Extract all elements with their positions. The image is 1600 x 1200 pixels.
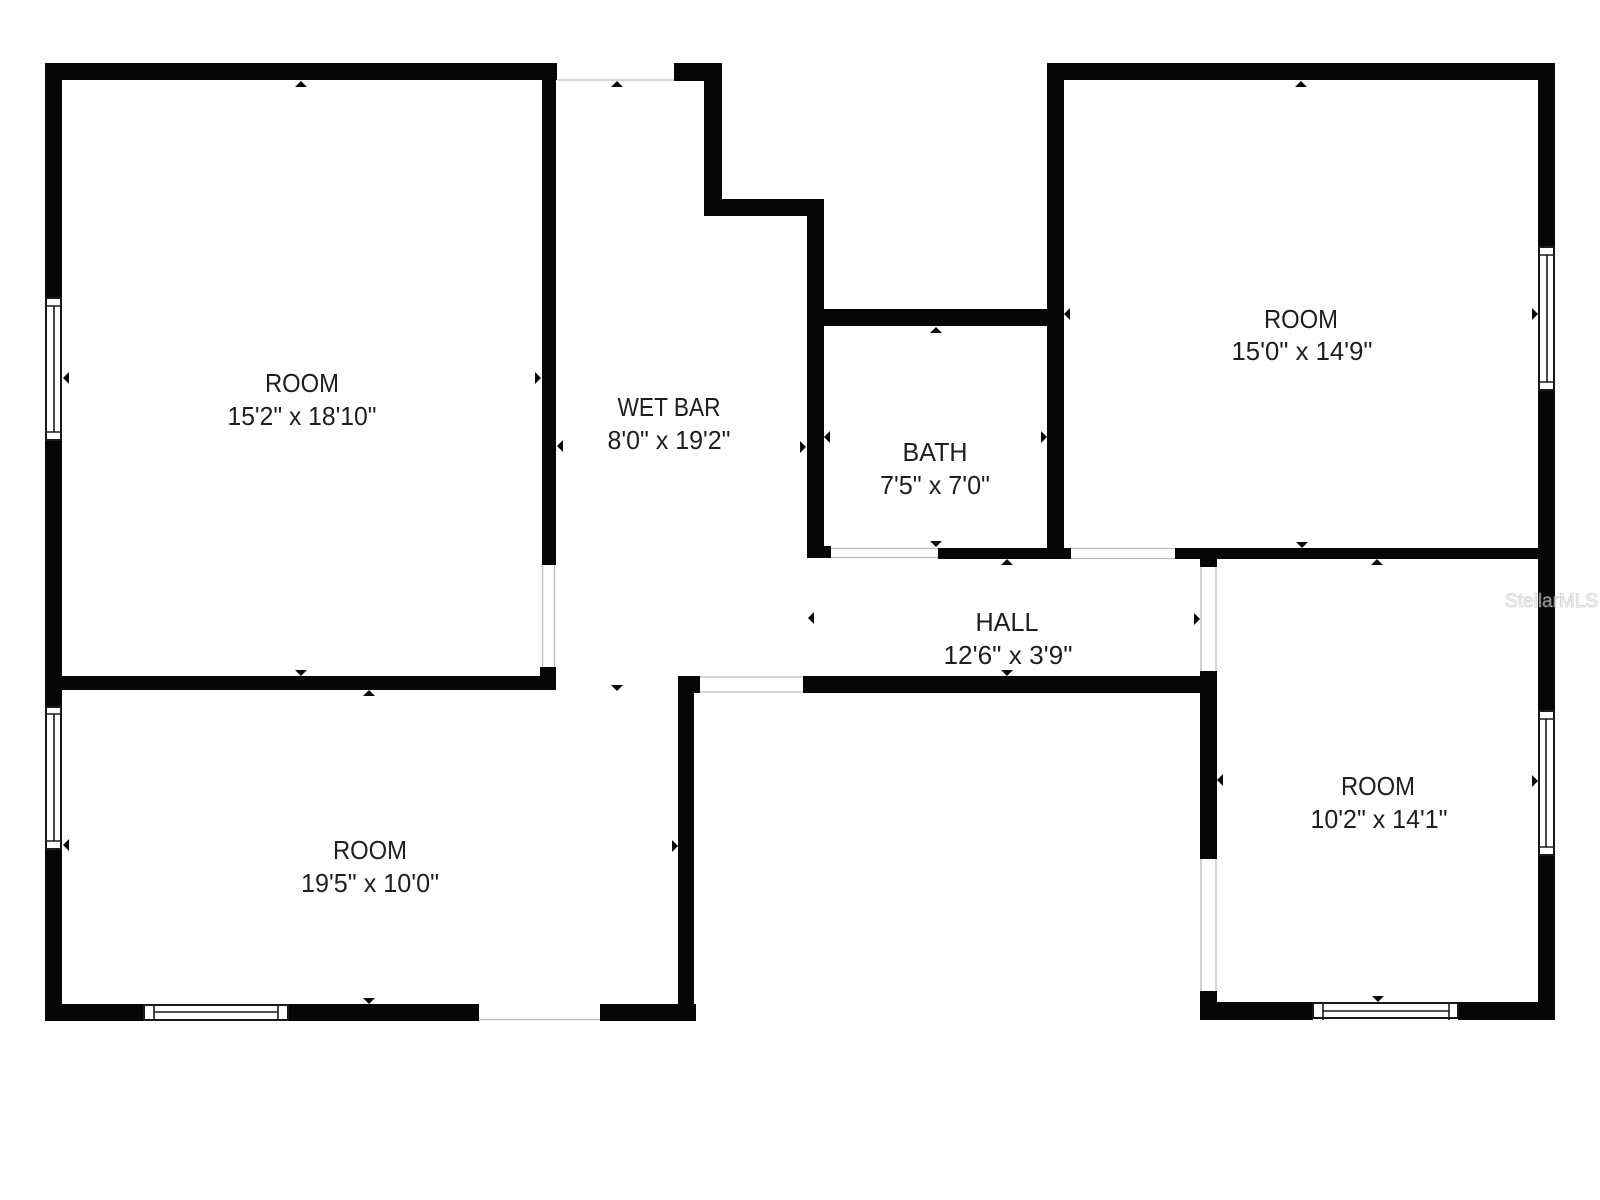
svg-text:WET BAR: WET BAR	[618, 392, 721, 422]
svg-text:12'6" x 3'9": 12'6" x 3'9"	[944, 640, 1073, 670]
svg-text:7'5" x 7'0": 7'5" x 7'0"	[880, 470, 990, 500]
svg-text:BATH: BATH	[903, 437, 968, 467]
svg-text:15'2" x 18'10": 15'2" x 18'10"	[228, 401, 377, 431]
svg-text:ROOM: ROOM	[1341, 771, 1415, 801]
svg-text:ROOM: ROOM	[265, 368, 339, 398]
svg-text:ROOM: ROOM	[1264, 304, 1338, 334]
svg-text:15'0" x 14'9": 15'0" x 14'9"	[1232, 336, 1373, 366]
svg-text:HALL: HALL	[976, 607, 1039, 637]
svg-text:10'2" x 14'1": 10'2" x 14'1"	[1311, 804, 1448, 834]
svg-text:8'0" x 19'2": 8'0" x 19'2"	[608, 425, 731, 455]
svg-text:ROOM: ROOM	[333, 835, 407, 865]
svg-text:19'5" x 10'0": 19'5" x 10'0"	[301, 868, 439, 898]
svg-text:StellarMLS: StellarMLS	[1505, 591, 1598, 612]
